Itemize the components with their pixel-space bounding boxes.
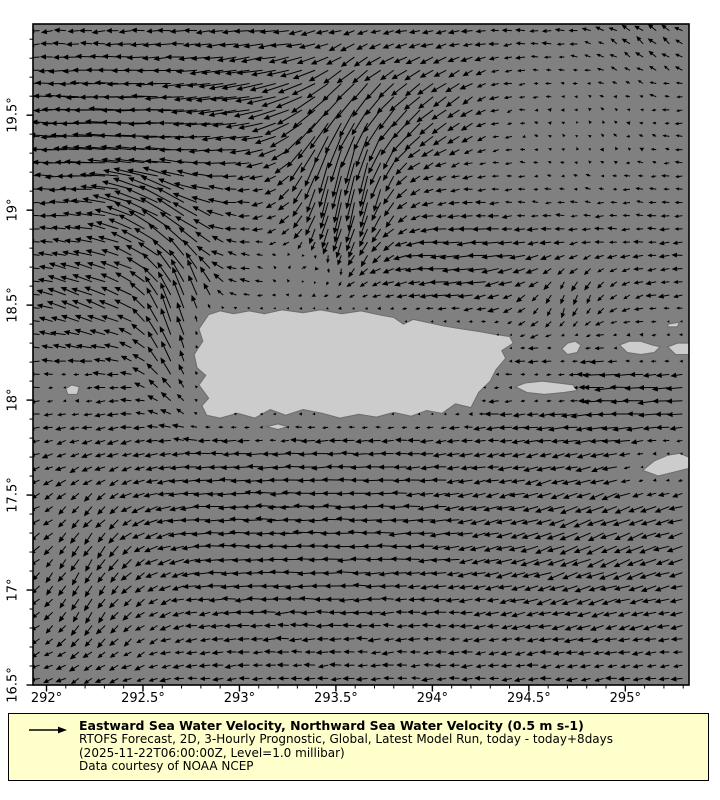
x-axis-tick-label: 292.5°	[121, 691, 165, 706]
y-axis-tick-label: 19°	[6, 199, 21, 222]
x-axis-tick-label: 293.5°	[314, 691, 358, 706]
x-axis-tick-label: 295°	[610, 691, 641, 706]
y-axis-tick-label: 17°	[6, 578, 21, 601]
velocity-map-figure: 292°292.5°293°293.5°294°294.5°295°16.5°1…	[0, 0, 720, 710]
y-axis-tick-label: 19.5°	[6, 97, 21, 132]
legend-title: Eastward Sea Water Velocity, Northward S…	[79, 719, 613, 733]
legend-credit: Data courtesy of NOAA NCEP	[79, 760, 613, 774]
legend-subtitle-1: RTOFS Forecast, 2D, 3-Hourly Prognostic,…	[79, 733, 613, 747]
x-axis-tick-label: 293°	[224, 691, 255, 706]
y-axis-tick-label: 18.5°	[6, 287, 21, 322]
x-axis-tick-label: 294°	[417, 691, 448, 706]
legend-text-block: Eastward Sea Water Velocity, Northward S…	[79, 714, 613, 774]
x-axis-tick-label: 294.5°	[507, 691, 551, 706]
x-axis-tick-label: 292°	[31, 691, 62, 706]
legend-box: Eastward Sea Water Velocity, Northward S…	[8, 713, 709, 781]
legend-subtitle-2: (2025-11-22T06:00:00Z, Level=1.0 milliba…	[79, 747, 613, 761]
reference-vector-arrow-icon	[29, 725, 67, 735]
y-axis-tick-label: 16.5°	[6, 667, 21, 702]
y-axis-tick-label: 17.5°	[6, 477, 21, 512]
velocity-quiver-canvas	[0, 0, 720, 710]
y-axis-tick-label: 18°	[6, 389, 21, 412]
